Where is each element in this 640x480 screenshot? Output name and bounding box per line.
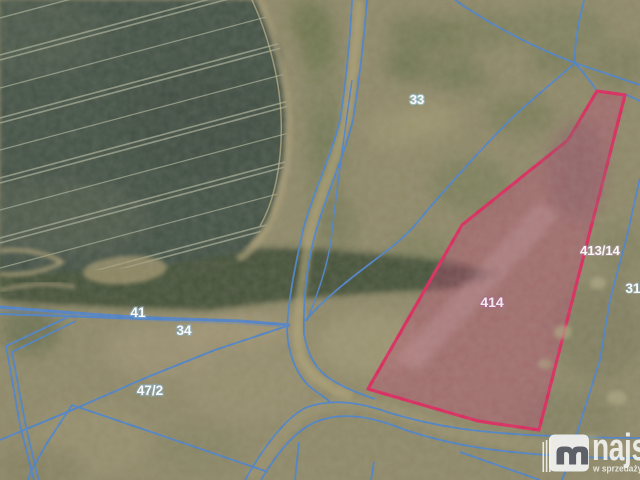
svg-text:31: 31 [625, 281, 640, 296]
svg-text:414: 414 [480, 294, 504, 310]
svg-text:41: 41 [130, 305, 146, 320]
svg-text:413/14: 413/14 [580, 243, 621, 258]
svg-text:33: 33 [410, 92, 424, 107]
svg-text:47/2: 47/2 [137, 383, 163, 398]
svg-text:34: 34 [176, 323, 192, 338]
svg-text:w sprzedaży ni: w sprzedaży ni [592, 463, 640, 473]
